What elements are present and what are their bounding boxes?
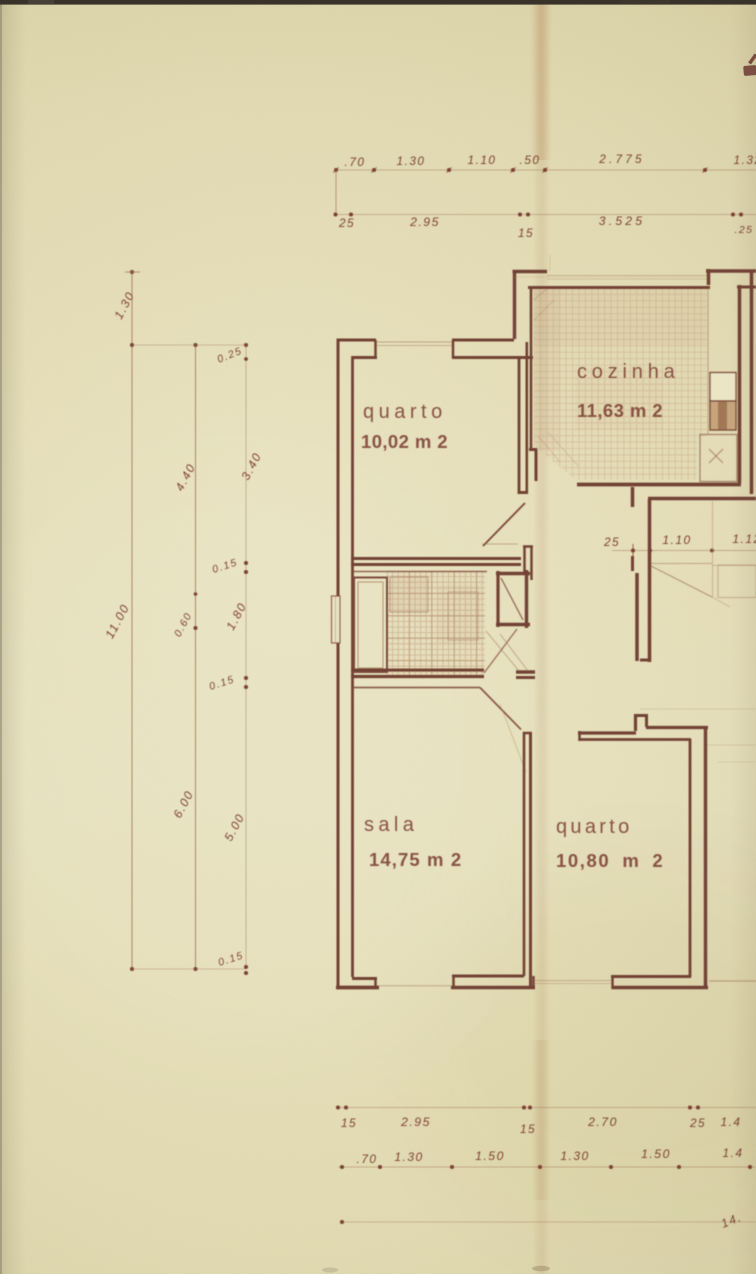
svg-text:10,80 m 2: 10,80 m 2	[556, 850, 664, 871]
svg-text:2.95: 2.95	[409, 215, 440, 229]
svg-text:quarto: quarto	[556, 816, 633, 838]
svg-text:14,75 m 2: 14,75 m 2	[369, 849, 462, 870]
svg-text:2.70: 2.70	[587, 1115, 618, 1129]
svg-text:1.50: 1.50	[475, 1149, 505, 1163]
svg-text:.50: .50	[520, 153, 541, 167]
svg-text:25: 25	[603, 535, 620, 549]
svg-text:.70: .70	[345, 155, 366, 169]
svg-text:10,02 m 2: 10,02 m 2	[361, 431, 448, 452]
svg-text:cozinha: cozinha	[577, 361, 680, 383]
svg-text:1.30: 1.30	[397, 154, 426, 168]
svg-text:.70: .70	[357, 1152, 378, 1166]
svg-text:1.10: 1.10	[468, 153, 497, 167]
svg-text:.25: .25	[735, 225, 754, 236]
svg-text:1.32: 1.32	[734, 153, 756, 167]
svg-text:1.50: 1.50	[641, 1147, 671, 1161]
svg-text:1.4: 1.4	[723, 1146, 744, 1160]
svg-text:sala: sala	[364, 814, 418, 836]
svg-text:2.95: 2.95	[400, 1115, 431, 1129]
svg-text:25: 25	[689, 1116, 706, 1130]
svg-text:1.12: 1.12	[732, 532, 756, 546]
svg-text:1.10: 1.10	[662, 533, 691, 547]
svg-text:3.525: 3.525	[599, 214, 646, 228]
svg-text:15: 15	[518, 226, 534, 240]
svg-text:15: 15	[520, 1122, 536, 1136]
svg-text:1.4: 1.4	[721, 1115, 742, 1129]
svg-text:15: 15	[341, 1116, 357, 1130]
svg-text:11,63 m 2: 11,63 m 2	[577, 400, 663, 421]
svg-text:1.30: 1.30	[560, 1149, 589, 1163]
svg-text:25: 25	[338, 216, 355, 230]
svg-text:2.775: 2.775	[598, 152, 645, 166]
svg-text:quarto: quarto	[363, 401, 447, 423]
svg-text:1.30: 1.30	[394, 1150, 423, 1164]
